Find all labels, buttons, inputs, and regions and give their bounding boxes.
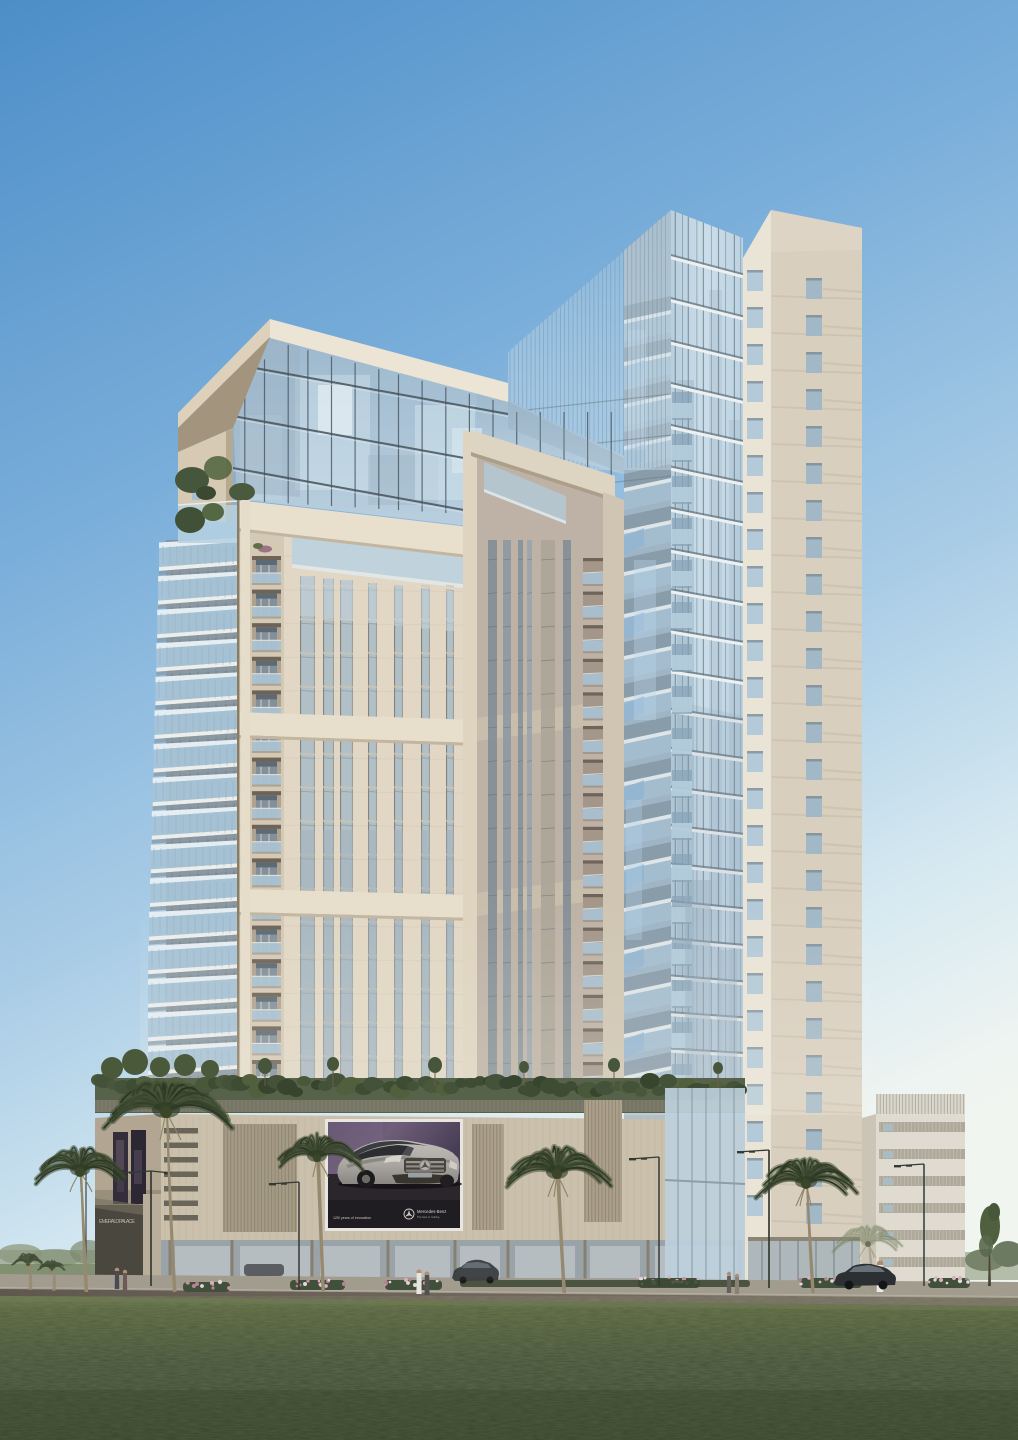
svg-text:Mercedes-Benz: Mercedes-Benz	[417, 1209, 446, 1214]
svg-text:125! years of innovation: 125! years of innovation	[333, 1216, 371, 1220]
svg-text:EMERALD PALACE: EMERALD PALACE	[99, 1219, 135, 1225]
svg-text:The best or nothing.: The best or nothing.	[417, 1215, 440, 1219]
